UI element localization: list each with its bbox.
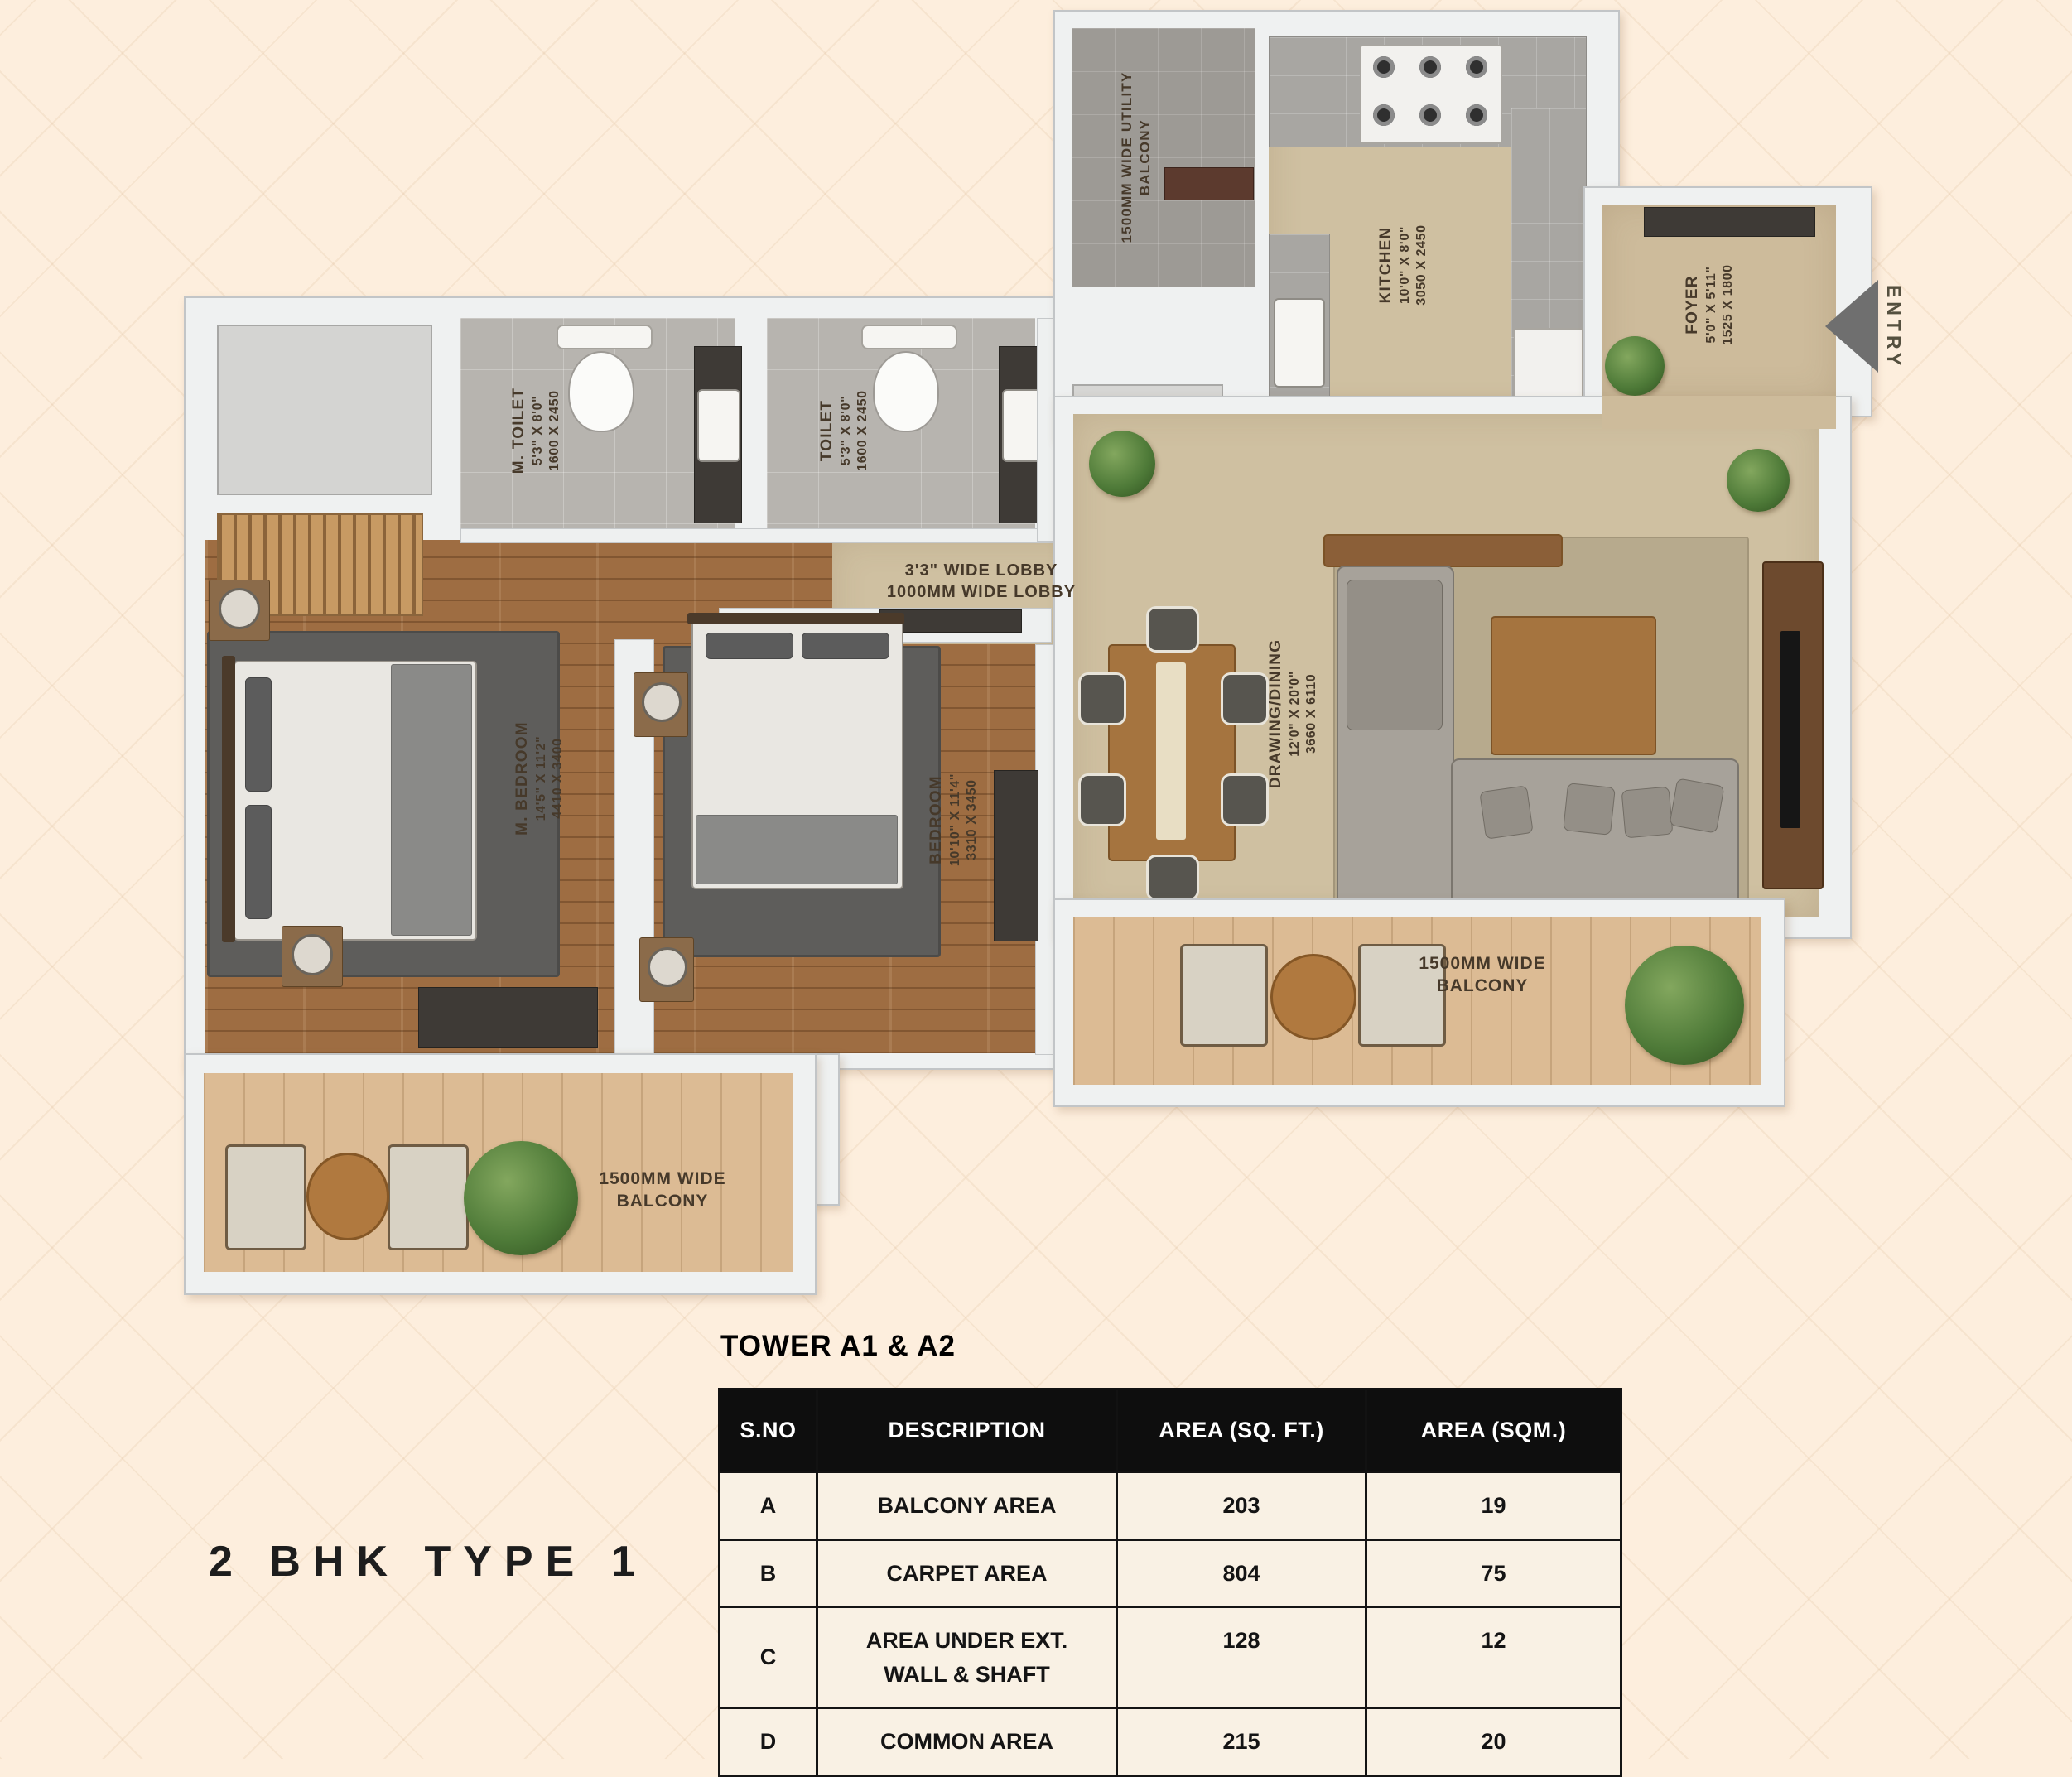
right-balcony-chair	[1180, 944, 1268, 1047]
right-balcony-table	[1270, 954, 1356, 1040]
entry-label: ENTRY	[1881, 282, 1906, 373]
utility-balcony-floor	[1072, 28, 1255, 287]
table-cell: 203	[1117, 1472, 1366, 1540]
sofa-pillow	[1479, 785, 1534, 840]
drawing-plant	[1089, 431, 1155, 497]
dining-chair	[1146, 855, 1199, 901]
m-bed-pillow	[245, 677, 272, 792]
table-cell: 128	[1117, 1607, 1366, 1708]
dining-chair	[1078, 773, 1126, 826]
kitchen-sink	[1274, 298, 1325, 388]
dining-runner	[1156, 662, 1186, 840]
left-balcony-chair	[225, 1144, 306, 1250]
bedroom-headboard	[687, 613, 904, 624]
table-header-row: S.NO DESCRIPTION AREA (SQ. FT.) AREA (SQ…	[720, 1389, 1621, 1472]
m-toilet-sink	[697, 389, 740, 462]
entry-arrow-icon	[1825, 280, 1878, 373]
floor-plan-page: M. TOILET 5'3" X 8'0" 1600 X 2450 TOILET…	[0, 0, 2072, 1759]
table-cell: B	[720, 1539, 817, 1607]
right-balcony-plant	[1625, 946, 1744, 1065]
right-balcony-label: 1500MM WIDE BALCONY	[1375, 952, 1590, 998]
bedroom-blanket	[696, 815, 898, 884]
table-cell: BALCONY AREA	[817, 1472, 1117, 1540]
tv-screen	[1780, 631, 1800, 828]
table-cell: A	[720, 1472, 817, 1540]
sofa-chaise-cushion	[1347, 580, 1443, 730]
sofa-pillow	[1563, 783, 1616, 836]
room-label-toilet: TOILET 5'3" X 8'0" 1600 X 2450	[812, 327, 877, 534]
m-toilet-bowl	[568, 351, 634, 432]
table-cell: 804	[1117, 1539, 1366, 1607]
room-label-m-toilet: M. TOILET 5'3" X 8'0" 1600 X 2450	[504, 327, 569, 534]
sofa-pillow	[1669, 778, 1724, 833]
room-label-foyer: FOYER 5'0" X 5'11" 1525 X 1800	[1679, 222, 1742, 388]
table-cell: CARPET AREA	[817, 1539, 1117, 1607]
table-header-description: DESCRIPTION	[817, 1389, 1117, 1472]
table-cell: COMMON AREA	[817, 1708, 1117, 1776]
table-cell: D	[720, 1708, 817, 1776]
left-balcony-label: 1500MM WIDE BALCONY	[555, 1168, 770, 1213]
lobby-label: 3'3" WIDE LOBBY 1000MM WIDE LOBBY	[861, 560, 1101, 603]
sofa-back-panel	[1323, 534, 1563, 567]
toilet-bowl	[873, 351, 939, 432]
shaft-box	[217, 325, 432, 495]
m-bedroom-dresser	[418, 987, 598, 1048]
table-row: B CARPET AREA 804 75	[720, 1539, 1621, 1607]
sofa-pillow	[1621, 787, 1674, 839]
left-balcony-chair	[388, 1144, 469, 1250]
kitchen-stove	[1360, 45, 1502, 144]
foyer-drawing-link-floor	[1602, 396, 1836, 429]
table-header-area-sqft: AREA (SQ. FT.)	[1117, 1389, 1366, 1472]
room-label-kitchen: KITCHEN 10'0" X 8'0" 3050 X 2450	[1371, 149, 1437, 381]
table-cell: 75	[1366, 1539, 1621, 1607]
table-caption: TOWER A1 & A2	[720, 1330, 956, 1363]
page-title: 2 BHK TYPE 1	[209, 1537, 648, 1587]
table-cell: 20	[1366, 1708, 1621, 1776]
table-header-sno: S.NO	[720, 1389, 817, 1472]
table-row: A BALCONY AREA 203 19	[720, 1472, 1621, 1540]
dining-chair	[1078, 672, 1126, 725]
bedroom-tv-unit	[994, 770, 1038, 941]
foyer-plant	[1605, 336, 1665, 396]
bedroom-lamp	[648, 947, 687, 987]
drawing-plant	[1727, 449, 1790, 512]
table-cell: AREA UNDER EXT. WALL & SHAFT	[817, 1607, 1117, 1708]
room-label-bedroom: BEDROOM 10'10" X 11'4" 3310 X 3450	[921, 708, 987, 932]
bedroom-lamp	[642, 682, 682, 722]
table-row: D COMMON AREA 215 20	[720, 1708, 1621, 1776]
table-row: C AREA UNDER EXT. WALL & SHAFT 128 12	[720, 1607, 1621, 1708]
m-bed-pillow	[245, 805, 272, 919]
bedroom-pillow	[802, 633, 889, 659]
table-cell: 12	[1366, 1607, 1621, 1708]
table-header-area-sqm: AREA (SQM.)	[1366, 1389, 1621, 1472]
m-toilet-cistern	[557, 325, 653, 349]
dining-chair	[1146, 606, 1199, 653]
left-balcony-table	[306, 1153, 389, 1240]
room-label-drawing-dining: DRAWING/DINING 12'0" X 20'0" 3660 X 6110	[1259, 581, 1328, 846]
area-table: S.NO DESCRIPTION AREA (SQ. FT.) AREA (SQ…	[718, 1388, 1622, 1777]
table-cell: C	[720, 1607, 817, 1708]
m-bed-lamp	[219, 588, 260, 629]
room-label-utility-balcony: 1500MM WIDE UTILITY BALCONY	[1112, 33, 1160, 282]
table-cell: 19	[1366, 1472, 1621, 1540]
utility-shelf	[1164, 167, 1254, 200]
m-bed-blanket	[391, 664, 472, 936]
m-bedroom-headboard	[222, 656, 235, 942]
bedroom-pillow	[706, 633, 793, 659]
m-bed-lamp	[292, 934, 333, 975]
room-label-m-bedroom: M. BEDROOM 14'5" X 11'2" 4410 X 3400	[506, 662, 574, 894]
table-cell: 215	[1117, 1708, 1366, 1776]
coffee-table	[1491, 616, 1656, 755]
